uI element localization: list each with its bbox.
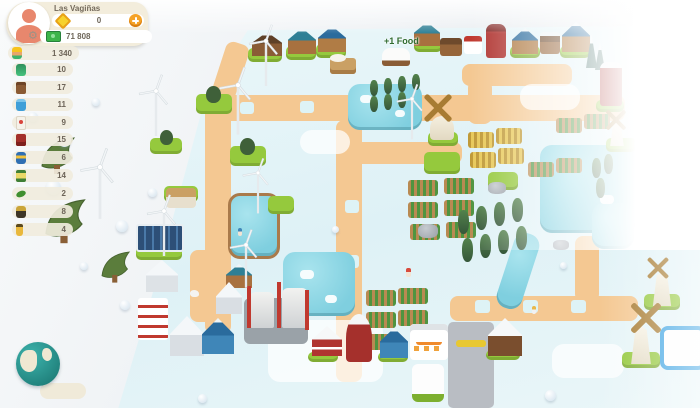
resource-count: 8 <box>62 207 66 216</box>
resource-count: 4 <box>62 225 66 234</box>
resource-count: 17 <box>57 83 66 92</box>
farm-plot[interactable] <box>398 288 428 304</box>
snowball <box>198 394 207 403</box>
covered-wagon[interactable] <box>382 48 410 66</box>
road-stop-line <box>456 340 486 347</box>
rock <box>488 182 506 194</box>
farm-plot[interactable] <box>408 180 438 196</box>
ice-floe <box>325 295 337 303</box>
poplar-tree <box>596 178 605 198</box>
shop-awning <box>414 346 444 351</box>
empty-road-slot[interactable] <box>571 300 586 313</box>
resource-pill[interactable]: 17 <box>12 81 73 94</box>
red-crate-icon <box>16 134 26 146</box>
cabin[interactable] <box>540 32 560 54</box>
silo[interactable] <box>600 62 622 106</box>
poplar-tree <box>370 80 378 96</box>
resource-pill[interactable]: 9 <box>12 116 73 129</box>
gear-icon[interactable] <box>28 30 40 42</box>
resource-pill[interactable]: 14 <box>12 169 73 182</box>
tree <box>240 138 255 155</box>
farm-plot[interactable] <box>444 178 474 194</box>
farm-plot[interactable] <box>366 312 396 328</box>
pickle-jar-icon <box>16 64 26 76</box>
city-name: Las Vagiñas <box>54 4 100 13</box>
wheat-plot[interactable] <box>496 128 522 144</box>
wooden-crate-icon <box>16 82 26 94</box>
snowball <box>686 228 700 242</box>
resource-count: 15 <box>57 135 66 144</box>
pipe <box>277 282 281 328</box>
silo[interactable] <box>346 314 372 362</box>
grass-tile[interactable] <box>268 196 294 214</box>
wind-turbine <box>81 148 114 218</box>
poplar-tree <box>384 94 392 110</box>
farm-plot[interactable] <box>584 114 610 129</box>
chicken[interactable] <box>190 290 199 297</box>
resource-count: 14 <box>57 171 66 180</box>
farm-plot[interactable] <box>556 158 582 173</box>
wind-turbine <box>139 75 168 136</box>
house[interactable] <box>562 22 590 52</box>
snow-patch <box>300 130 350 154</box>
globe-label-pill <box>40 383 86 399</box>
gem-count: 0 <box>69 16 129 25</box>
villager[interactable] <box>406 268 411 277</box>
tree <box>160 130 173 145</box>
wheat-plot[interactable] <box>470 152 496 168</box>
hay-bale <box>330 54 346 62</box>
farm-plot[interactable] <box>366 290 396 306</box>
empty-road-slot[interactable] <box>300 101 314 113</box>
poplar-tree <box>476 206 487 230</box>
world-map-button[interactable] <box>16 342 60 386</box>
money-counter: 71 808 <box>40 30 152 43</box>
resource-count: 9 <box>62 118 66 127</box>
resource-pill[interactable]: 10 <box>12 63 73 76</box>
snowball <box>80 262 88 270</box>
poplar-tree <box>498 230 509 254</box>
poplar-tree <box>604 154 613 174</box>
asphalt-road[interactable] <box>448 322 494 408</box>
canned-food-icon <box>16 170 26 182</box>
grass-tile[interactable] <box>424 152 460 174</box>
villager[interactable] <box>238 228 242 236</box>
striped-barn[interactable] <box>138 298 168 340</box>
snowball <box>660 192 671 203</box>
game-world[interactable]: +1 Food <box>0 0 700 408</box>
pipe <box>247 286 251 328</box>
farm-plot[interactable] <box>556 118 582 133</box>
market-stall[interactable] <box>166 188 196 208</box>
silo[interactable] <box>486 24 506 58</box>
tree <box>206 86 221 103</box>
resource-pill[interactable]: 2 <box>12 187 73 200</box>
milk-box-icon <box>16 116 26 130</box>
resource-pill[interactable]: 6 <box>12 151 73 164</box>
resource-count: 2 <box>62 189 66 198</box>
empty-road-slot[interactable] <box>240 102 254 114</box>
oil-bottle-icon <box>16 224 23 236</box>
poplar-tree <box>592 158 601 178</box>
snowball <box>560 262 567 269</box>
poplar-tree <box>384 78 392 94</box>
fuel-barrel-icon <box>16 152 26 164</box>
poplar-tree <box>516 226 527 250</box>
resource-pill[interactable]: 11 <box>12 98 73 111</box>
farm-plot[interactable] <box>408 202 438 218</box>
wheat-plot[interactable] <box>468 132 494 148</box>
pipe <box>305 290 309 330</box>
farm-plot[interactable] <box>528 162 554 177</box>
resource-pill[interactable]: 4 <box>12 223 73 236</box>
workers-pill[interactable]: 1 340 <box>8 46 79 60</box>
windmill-house[interactable] <box>430 116 454 140</box>
snowball <box>92 98 100 106</box>
snowball <box>332 226 339 233</box>
rock <box>553 240 569 250</box>
snow-grass-tile[interactable] <box>412 364 444 402</box>
money-icon <box>46 31 61 42</box>
snow-patch <box>552 344 624 378</box>
gem-icon <box>55 12 72 29</box>
snowball <box>148 188 157 197</box>
resource-count: 6 <box>62 153 66 162</box>
workers-count: 1 340 <box>52 49 72 58</box>
resource-count: 11 <box>58 100 66 109</box>
floating-reward-text: +1 Food <box>384 36 419 46</box>
pond[interactable] <box>592 203 634 249</box>
villager[interactable] <box>532 306 536 314</box>
poplar-tree <box>480 234 491 258</box>
resource-pill[interactable]: 15 <box>12 133 73 146</box>
poplar-tree <box>494 202 505 226</box>
game-screen: +1 Food Las Vagiñas 0 71 808 1 340 10 17 <box>0 0 700 408</box>
snowball <box>116 220 128 232</box>
snowball <box>545 390 556 401</box>
poplar-tree <box>462 238 473 262</box>
honey-jar-icon <box>16 206 26 218</box>
shop-smile-sign <box>416 336 442 345</box>
poplar-tree <box>458 210 469 234</box>
gem-counter: 0 <box>52 14 144 27</box>
rock <box>418 224 438 238</box>
ice-floe <box>395 110 405 117</box>
snow-patch <box>520 84 580 110</box>
money-amount: 71 808 <box>66 32 90 41</box>
poplar-tree <box>398 92 406 108</box>
road[interactable] <box>468 80 492 124</box>
resource-count: 10 <box>57 65 66 74</box>
cucumber-icon <box>15 189 27 198</box>
snowball <box>120 300 130 310</box>
poplar-tree <box>512 198 523 222</box>
empty-road-slot[interactable] <box>475 300 490 313</box>
add-gems-button[interactable] <box>129 14 142 27</box>
solar-panels[interactable] <box>136 224 184 252</box>
cabin[interactable] <box>440 38 462 56</box>
road[interactable] <box>190 250 214 322</box>
worker-icon <box>12 47 22 59</box>
kiosk[interactable] <box>464 36 482 54</box>
pine-tree <box>102 252 129 283</box>
water-barrel-icon <box>16 99 26 111</box>
resource-pill[interactable]: 8 <box>12 205 73 218</box>
poplar-tree <box>398 76 406 92</box>
storage-tank <box>250 292 274 328</box>
ice-floe <box>300 270 314 279</box>
wheat-plot[interactable] <box>498 148 524 164</box>
poplar-tree <box>370 96 378 112</box>
empty-road-slot[interactable] <box>345 200 359 213</box>
selected-empty-tile[interactable] <box>660 326 700 370</box>
poplar-tree <box>412 74 420 90</box>
